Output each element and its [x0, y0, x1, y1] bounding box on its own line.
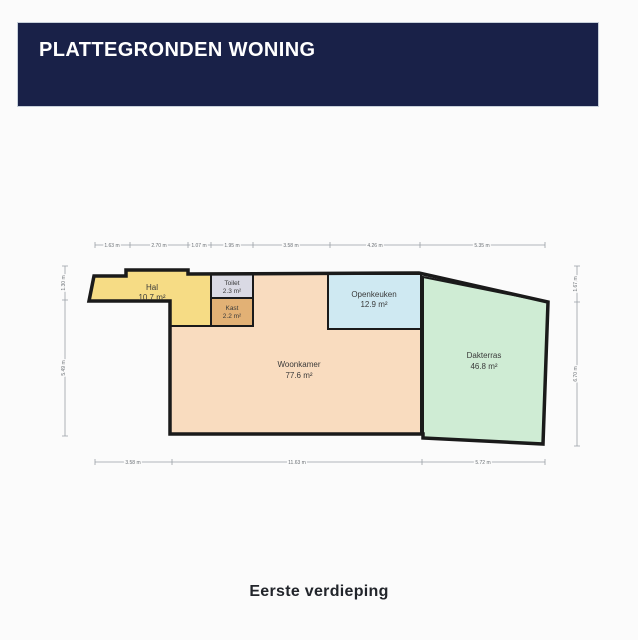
dimension-label: 1.63 m	[104, 243, 119, 249]
room-area-openkeuken: 12.9 m²	[360, 300, 387, 309]
dimension-labels-bottom: 3.58 m11.63 m5.72 m	[125, 460, 490, 466]
room-dakterras	[423, 277, 548, 444]
dimension-label: 3.58 m	[283, 243, 298, 249]
dimension-label: 5.49 m	[61, 360, 67, 375]
dimension-label: 1.67 m	[573, 276, 579, 291]
room-name-openkeuken: Openkeuken	[351, 290, 396, 299]
dimension-label: 3.58 m	[125, 460, 140, 466]
room-area-hal: 10.7 m²	[138, 293, 165, 302]
dimension-label: 11.63 m	[288, 460, 306, 466]
dimension-labels-right: 1.67 m6.70 m	[573, 276, 579, 381]
room-kast	[211, 298, 253, 326]
dimension-label: 5.35 m	[474, 243, 489, 249]
dimension-labels-top: 1.63 m2.70 m1.07 m1.95 m3.58 m4.26 m5.35…	[104, 243, 489, 249]
dimension-label: 4.26 m	[367, 243, 382, 249]
room-area-dakterras: 46.8 m²	[470, 362, 497, 371]
dimension-label: 2.70 m	[151, 243, 166, 249]
room-area-kast: 2.2 m²	[223, 313, 242, 320]
dimension-label: 5.72 m	[475, 460, 490, 466]
dimension-label: 1.30 m	[61, 275, 67, 290]
dimension-labels-left: 1.30 m5.49 m	[61, 275, 67, 375]
room-area-woonkamer: 77.6 m²	[285, 371, 312, 380]
dimension-label: 1.95 m	[224, 243, 239, 249]
floor-caption: Eerste verdieping	[0, 583, 638, 601]
floorplan: 1.63 m2.70 m1.07 m1.95 m3.58 m4.26 m5.35…	[0, 0, 638, 640]
dimension-label: 1.07 m	[191, 243, 206, 249]
room-name-dakterras: Dakterras	[467, 351, 502, 360]
room-name-hal: Hal	[146, 283, 158, 292]
room-name-woonkamer: Woonkamer	[278, 360, 321, 369]
dimension-label: 6.70 m	[573, 366, 579, 381]
room-name-toilet: Toilet	[224, 280, 239, 287]
room-area-toilet: 2.3 m²	[223, 288, 242, 295]
room-name-kast: Kast	[225, 305, 238, 312]
